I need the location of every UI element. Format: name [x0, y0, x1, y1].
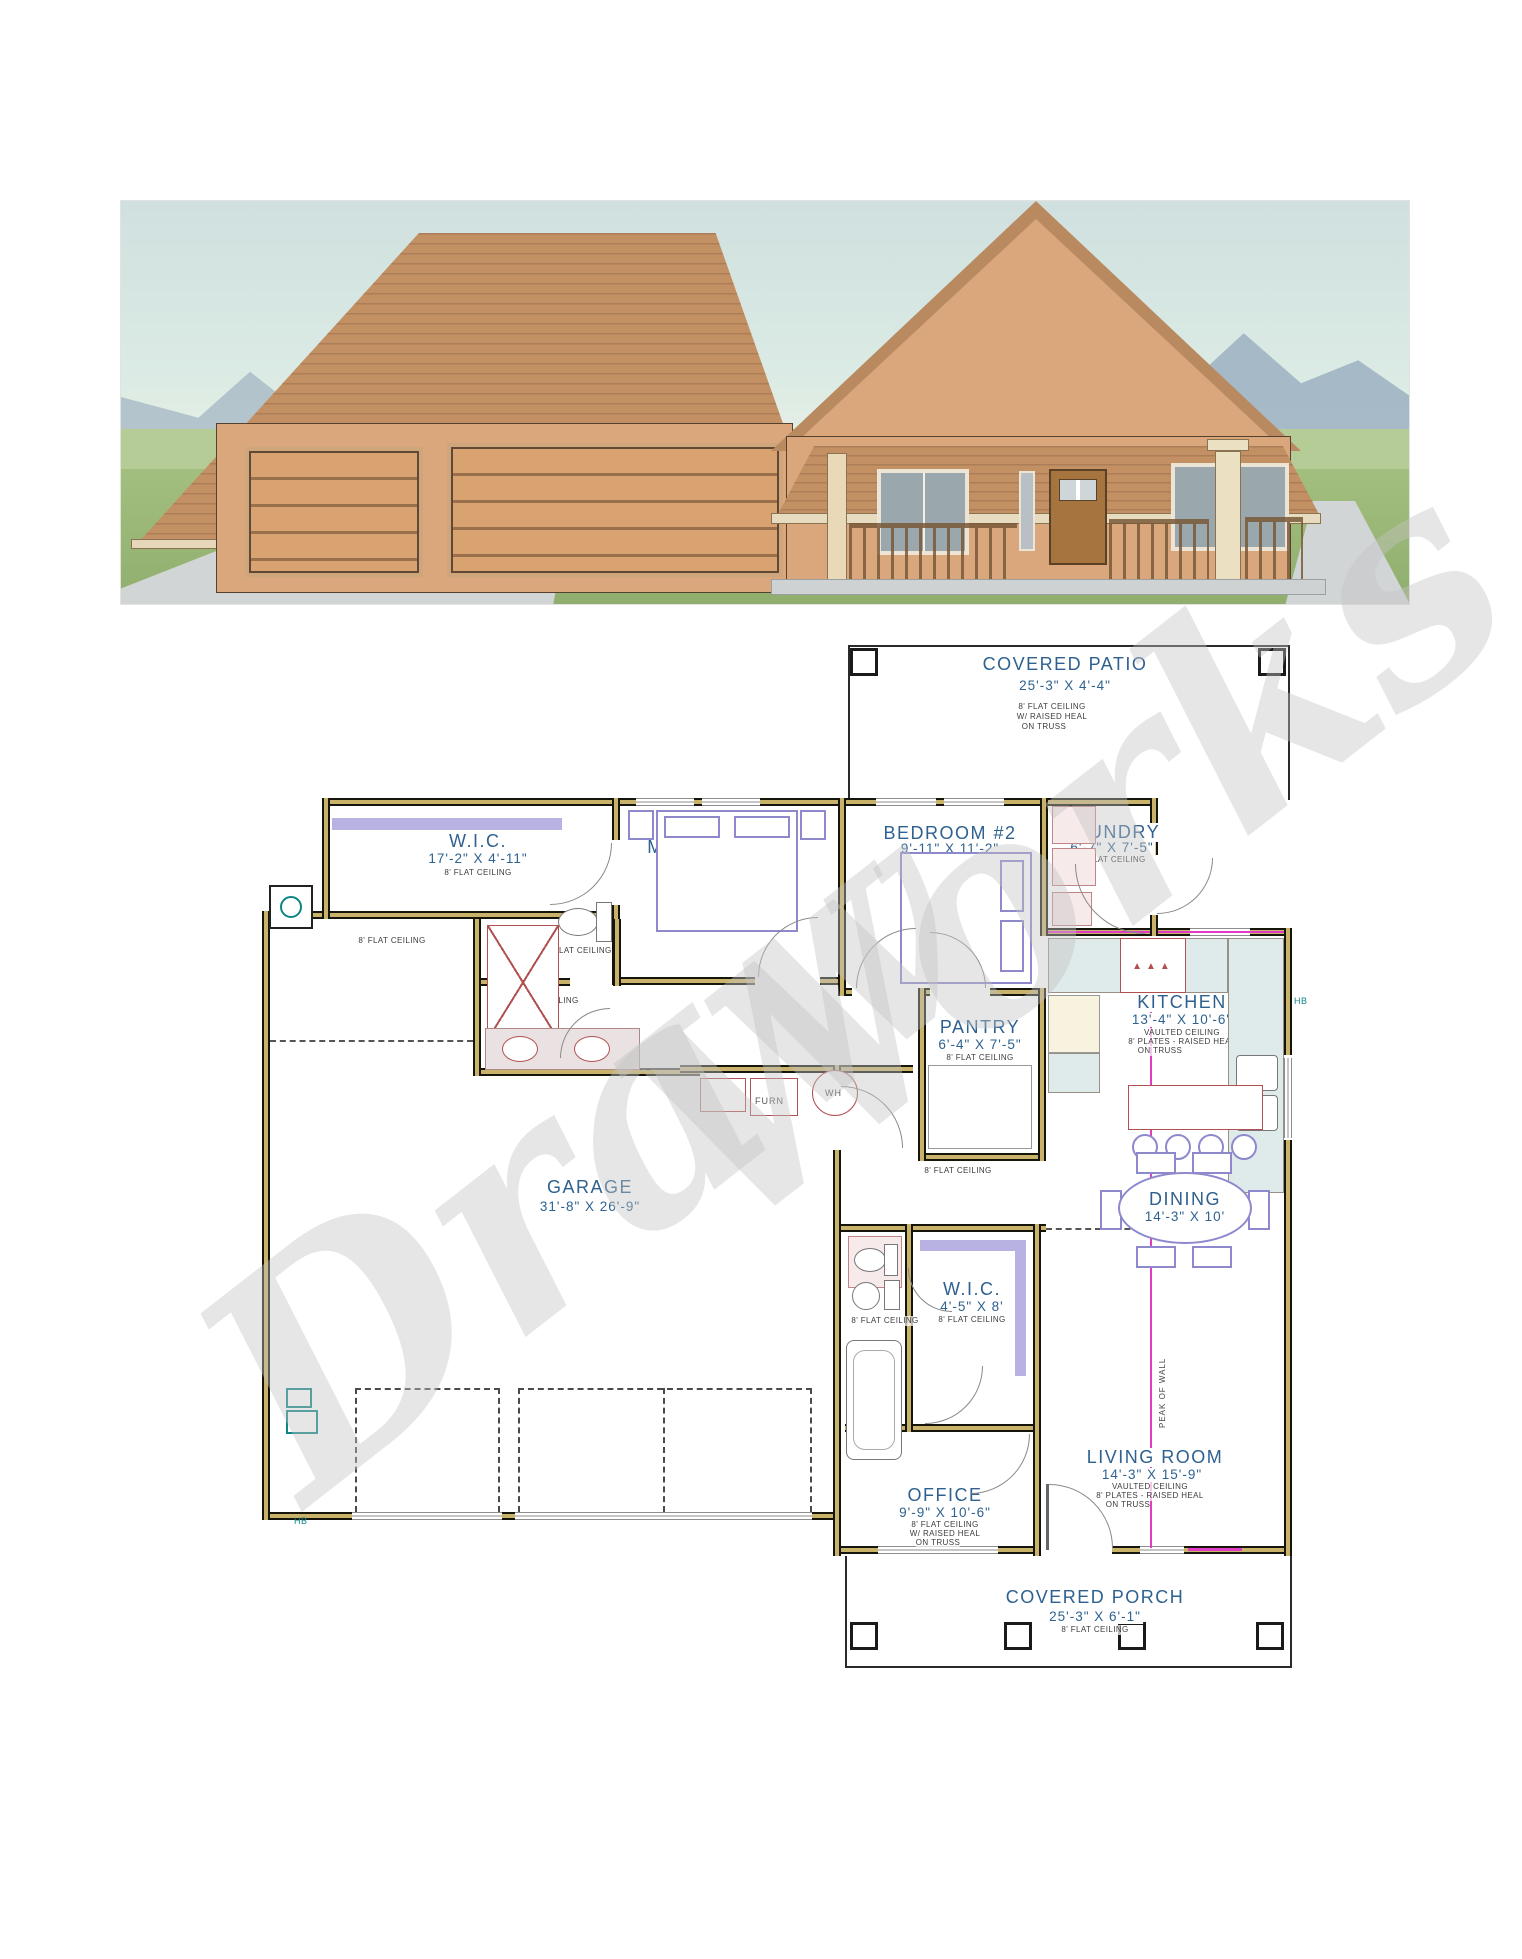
- wall: [322, 798, 330, 919]
- nightstand: [800, 810, 826, 840]
- wall: [612, 798, 620, 840]
- room-dims-dining: 14'-3" X 10': [1143, 1210, 1228, 1224]
- porch-outline-bottom: [845, 1666, 1292, 1668]
- room-dims-covered-patio: 25'-3" X 4'-4": [1017, 679, 1113, 693]
- wall: [262, 911, 270, 1520]
- bathtub-basin: [853, 1350, 895, 1450]
- ceiling-note: 8' FLAT CEILING: [358, 936, 425, 946]
- ceiling-note: 8' FLAT CEILING: [938, 1315, 1005, 1325]
- toilet-bowl: [854, 1248, 886, 1272]
- toilet-bowl: [558, 908, 598, 936]
- room-label-dining: DINING: [1146, 1190, 1224, 1209]
- wall: [1284, 928, 1292, 1055]
- toilet-tank: [596, 902, 612, 942]
- patio-post: [850, 648, 878, 676]
- ceiling-note: 8' FLAT CEILING: [444, 868, 511, 878]
- wall: [918, 988, 926, 1161]
- door-swing: [841, 1086, 903, 1148]
- ceiling-note: ON TRUSS: [1022, 722, 1066, 732]
- wall: [918, 1153, 1046, 1161]
- island-stool: [1231, 1134, 1257, 1160]
- dining-chair: [1192, 1246, 1232, 1268]
- room-label-wic-master: W.I.C.: [446, 832, 510, 851]
- ceiling-note: 8' FLAT CEILING: [924, 1166, 991, 1176]
- door-swing: [856, 928, 916, 988]
- wall: [680, 1065, 913, 1073]
- door-swing: [925, 1366, 983, 1424]
- wall: [612, 977, 755, 985]
- wall: [1040, 798, 1048, 936]
- room-dims-garage: 31'-8" X 26'-9": [538, 1200, 642, 1214]
- bed-pillow: [664, 816, 720, 838]
- front-door-leaf: [1046, 1484, 1049, 1550]
- porch-outline-left: [845, 1556, 847, 1668]
- single-garage-door: [249, 451, 419, 573]
- vanity-sink: [502, 1036, 538, 1062]
- window: [1140, 1546, 1184, 1554]
- room-label-covered-porch: COVERED PORCH: [1003, 1588, 1188, 1607]
- room-dims-covered-porch: 25'-3" X 6'-1": [1047, 1610, 1143, 1624]
- toilet-tank: [884, 1244, 898, 1276]
- dining-chair: [1192, 1152, 1232, 1174]
- room-dims-pantry: 6'-4" X 7'-5": [936, 1038, 1023, 1052]
- garage-door-seam: [663, 1388, 665, 1512]
- wall: [613, 919, 621, 986]
- bed-pillow: [734, 816, 790, 838]
- window: [1284, 1058, 1292, 1138]
- patio-outline-top: [848, 645, 1290, 647]
- room-label-covered-patio: COVERED PATIO: [980, 655, 1151, 674]
- room-label-living: LIVING ROOM: [1084, 1448, 1227, 1467]
- bath-stool: [884, 1280, 900, 1310]
- window: [636, 798, 694, 806]
- ceiling-note: 8' FLAT CEILING: [1018, 702, 1085, 712]
- window: [944, 798, 1004, 806]
- shower: [487, 925, 559, 1040]
- porch-post-right: [1215, 451, 1241, 585]
- garage-door-track: [518, 1388, 812, 1512]
- door-swing: [908, 1268, 952, 1312]
- wall: [1150, 915, 1158, 936]
- water-heater-label: WH: [825, 1088, 842, 1098]
- porch-post-right-cap: [1207, 439, 1249, 451]
- closet-shelf: [1015, 1251, 1026, 1376]
- vault-line-horizontal: [1048, 931, 1284, 933]
- door-swing: [560, 1008, 610, 1058]
- house-rendering: [120, 200, 1410, 605]
- ceiling-note: W/ RAISED HEAL: [1017, 712, 1088, 722]
- door-glass: [1059, 479, 1097, 501]
- porch-post: [850, 1622, 878, 1650]
- window: [876, 798, 936, 806]
- door-sidelite: [1019, 471, 1035, 551]
- window: [702, 798, 760, 806]
- wall: [833, 1150, 841, 1556]
- porch-outline-right: [1290, 1556, 1292, 1668]
- porch-railing-mid: [1109, 519, 1209, 581]
- wall: [1033, 1224, 1041, 1556]
- porch-slab: [771, 579, 1326, 595]
- pantry-shelves: [928, 1065, 1032, 1149]
- room-label-pantry: PANTRY: [937, 1018, 1023, 1037]
- ceiling-note: ON TRUSS: [1138, 1046, 1182, 1056]
- garage-door-opening: [352, 1512, 502, 1520]
- bed-pillow: [1000, 920, 1024, 972]
- front-door: [1049, 469, 1107, 565]
- kitchen-island: [1128, 1085, 1263, 1130]
- room-label-garage: GARAGE: [544, 1178, 636, 1197]
- kitchen-counter-left: [1048, 1053, 1100, 1093]
- washer: [1052, 806, 1096, 844]
- wall: [905, 1224, 913, 1432]
- exterior-fixture: [280, 896, 302, 918]
- porch-post: [1256, 1622, 1284, 1650]
- door-swing: [970, 1434, 1030, 1494]
- range: ▲▲▲: [1120, 938, 1186, 993]
- patio-outline-right: [1288, 645, 1290, 800]
- room-dims-kitchen: 13'-4" X 10'-6": [1130, 1013, 1234, 1027]
- workbench: [700, 1078, 746, 1112]
- patio-post: [1258, 648, 1286, 676]
- ceiling-note: 8' FLAT CEILING: [1061, 1625, 1128, 1635]
- closet-shelf: [920, 1240, 1026, 1251]
- wall: [845, 988, 852, 996]
- electrical-meter: [286, 1388, 312, 1408]
- wall: [838, 1224, 1046, 1232]
- garage-door-track: [355, 1388, 500, 1512]
- wall: [502, 1512, 515, 1520]
- double-garage-door: [451, 447, 779, 573]
- ceiling-note: ON TRUSS: [916, 1538, 960, 1548]
- room-dims-living: 14'-3" X 15'-9": [1100, 1468, 1204, 1482]
- ceiling-note: 8' FLAT CEILING: [946, 1053, 1013, 1063]
- ceiling-break-line: [270, 1040, 473, 1042]
- door-swing: [550, 843, 612, 905]
- porch-post-left: [827, 453, 847, 589]
- door-swing: [1157, 858, 1213, 914]
- wall: [473, 919, 481, 1076]
- ceiling-note: ON TRUSS: [1106, 1500, 1150, 1510]
- hose-bib-label: HB: [294, 1516, 308, 1526]
- hose-bib-label: HB: [1294, 996, 1308, 1006]
- porch-post: [1004, 1622, 1032, 1650]
- electrical-panel: [286, 1410, 318, 1434]
- closet-shelf: [332, 818, 562, 830]
- garage-door-opening: [515, 1512, 812, 1520]
- dining-chair: [1136, 1152, 1176, 1174]
- porch-railing-right: [1245, 517, 1303, 581]
- ceiling-note: 8' FLAT CEILING: [851, 1316, 918, 1326]
- bath-sink: [852, 1282, 880, 1310]
- room-dims-office: 9'-9" X 10'-6": [897, 1506, 993, 1520]
- room-dims-wic-master: 17'-2" X 4'-11": [426, 852, 529, 866]
- nightstand: [628, 810, 654, 840]
- wall: [838, 798, 846, 996]
- room-label-kitchen: KITCHEN: [1134, 993, 1230, 1012]
- furnace-label: FURN: [755, 1096, 784, 1106]
- bed-pillow: [1000, 860, 1024, 912]
- porch-railing-left: [849, 523, 1017, 581]
- house-plan-sheet: COVERED PATIO 25'-3" X 4'-4" 8' FLAT CEI…: [0, 0, 1522, 1959]
- refrigerator: [1048, 995, 1100, 1053]
- peak-of-wall-label: PEAK OF WALL: [1158, 1358, 1167, 1428]
- dining-chair: [1136, 1246, 1176, 1268]
- patio-slider-door: [1188, 1548, 1242, 1551]
- wall: [1038, 988, 1046, 1161]
- wall: [1284, 1140, 1292, 1556]
